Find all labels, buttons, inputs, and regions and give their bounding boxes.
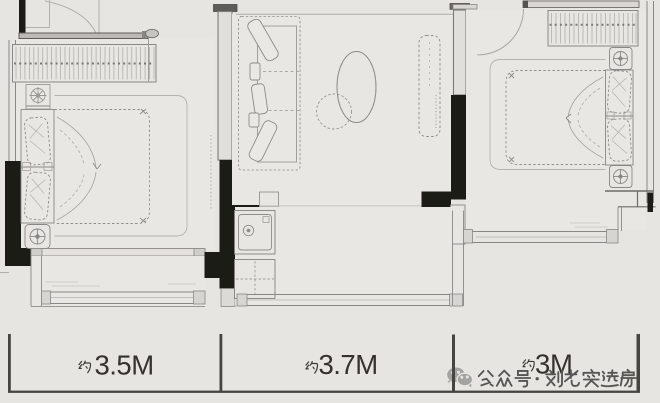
svg-text:3.5M: 3.5M bbox=[95, 350, 154, 381]
svg-text:3.7M: 3.7M bbox=[319, 349, 378, 380]
